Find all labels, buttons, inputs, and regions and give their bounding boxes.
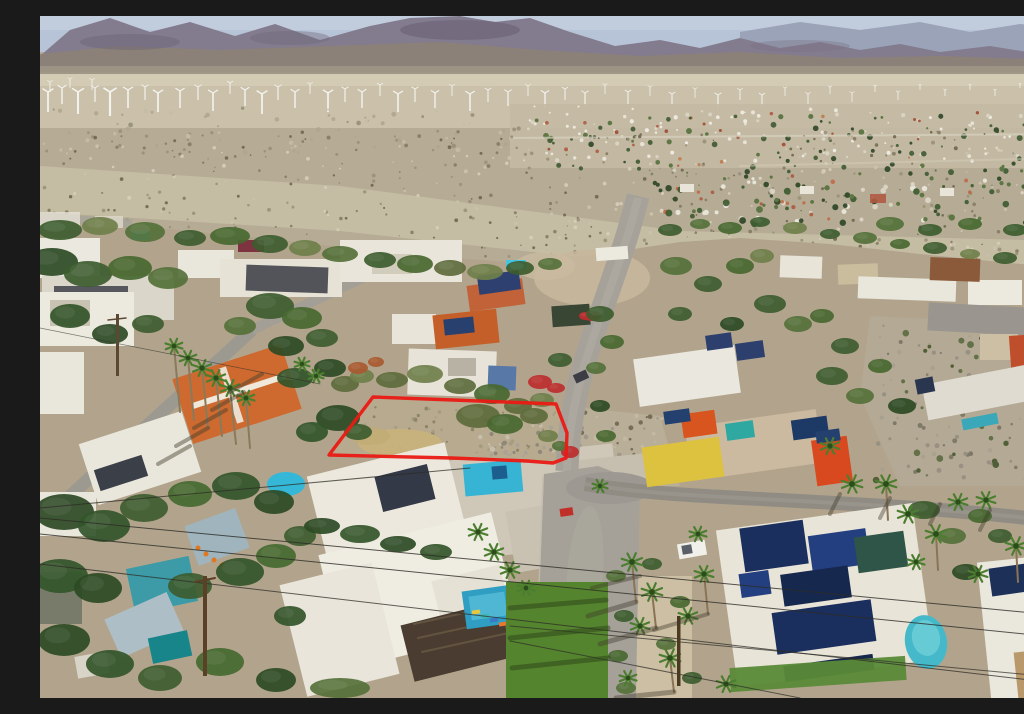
- scene-canvas: [40, 16, 1024, 698]
- aerial-photo: [40, 16, 1024, 698]
